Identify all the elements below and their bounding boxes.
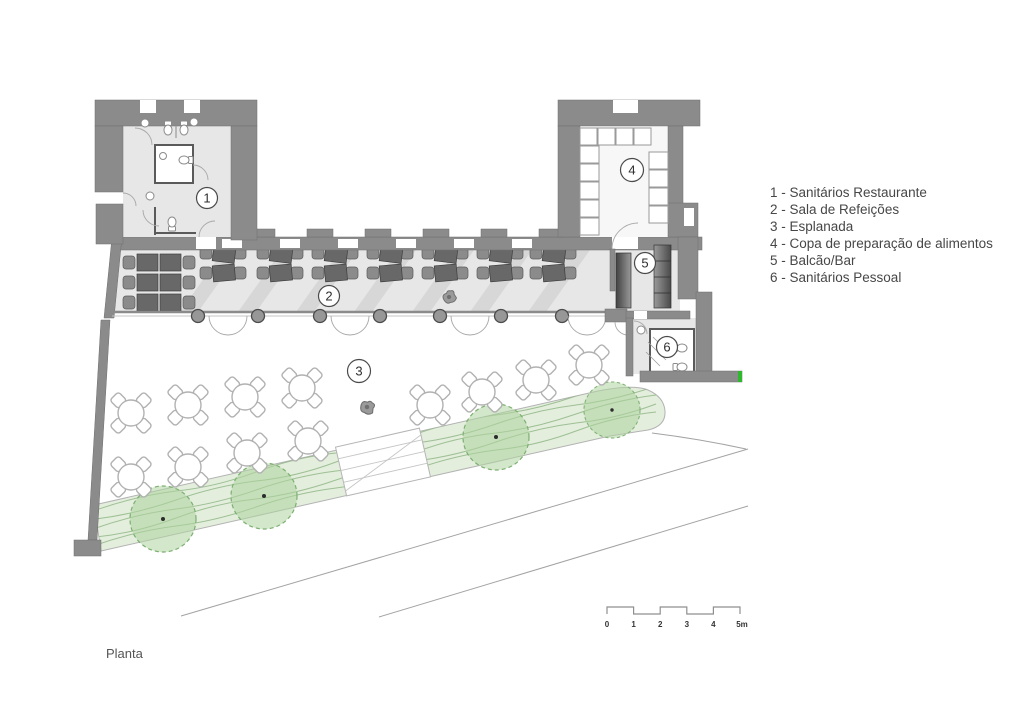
scale-tick-label: 3 [685,620,690,629]
door-arc [568,316,606,335]
sink-icon [141,119,149,127]
svg-text:4: 4 [628,163,635,178]
road-line [379,506,748,617]
terrace-table [568,344,610,386]
terrace-table [167,446,209,488]
terrace-table [224,376,266,418]
sink-icon [146,192,154,200]
column [495,310,508,323]
room-label-2: 2 [319,286,340,307]
door-arc [209,316,247,335]
svg-text:2: 2 [325,289,332,304]
terrace-table [515,359,557,401]
wc-core [155,145,193,183]
scale-bar: 0 1 2 3 4 5m [605,607,748,629]
person-icon [359,398,377,416]
legend-item: 4 - Copa de preparação de alimentos [770,235,993,252]
legend: 1 - Sanitários Restaurante 2 - Sala de R… [770,184,993,286]
scale-tick-label: 0 [605,620,610,629]
column [314,310,327,323]
svg-text:5: 5 [641,256,648,271]
terrace-table [167,384,209,426]
toilet-icon [179,156,193,164]
sink-icon [190,118,198,126]
legend-item: 5 - Balcão/Bar [770,252,993,269]
column [434,310,447,323]
column [556,310,569,323]
legend-item: 1 - Sanitários Restaurante [770,184,993,201]
bar-counter [616,253,631,308]
tree [584,382,640,438]
scale-tick-label: 4 [711,620,716,629]
toilet-icon [168,217,176,231]
terrace-table [287,420,329,462]
tree [231,463,297,529]
tree [463,404,529,470]
room-label-3: 3 [348,360,371,383]
scale-tick-label: 1 [631,620,636,629]
plan-title: Planta [106,646,143,661]
path-edge-line [652,433,746,449]
svg-text:3: 3 [355,364,362,379]
door-arc [331,316,369,335]
room-label-6: 6 [657,337,678,358]
room-label-5: 5 [635,253,656,274]
svg-text:1: 1 [203,191,210,206]
sink-icon [637,326,645,334]
column [192,310,205,323]
tree [130,486,196,552]
legend-item: 6 - Sanitários Pessoal [770,269,993,286]
terrace-table [281,367,323,409]
toilet-icon [164,121,172,135]
room-label-1: 1 [197,188,218,209]
wing-restaurant-wc [95,100,257,249]
terrace-table [110,392,152,434]
svg-text:6: 6 [663,340,670,355]
scale-tick-label: 5m [736,620,748,629]
floor-plan-page: 1 2 3 4 5 6 0 1 2 3 4 5m 1 [0,0,1024,724]
legend-item: 3 - Esplanada [770,218,993,235]
terrace-table [409,384,451,426]
toilet-icon [180,121,188,135]
column [252,310,265,323]
scale-tick-label: 2 [658,620,663,629]
column [374,310,387,323]
south-glazed-front [112,310,612,336]
room-label-4: 4 [621,159,644,182]
legend-item: 2 - Sala de Refeições [770,201,993,218]
door-arc [451,316,489,335]
toilet-icon [673,363,687,371]
floor-plan-drawing: 1 2 3 4 5 6 0 1 2 3 4 5m [0,0,1024,724]
stairs [336,428,431,496]
terrace-table [110,456,152,498]
bar-back-counter [654,245,671,308]
green-accent-mark [738,371,742,382]
sink-icon [160,153,167,160]
